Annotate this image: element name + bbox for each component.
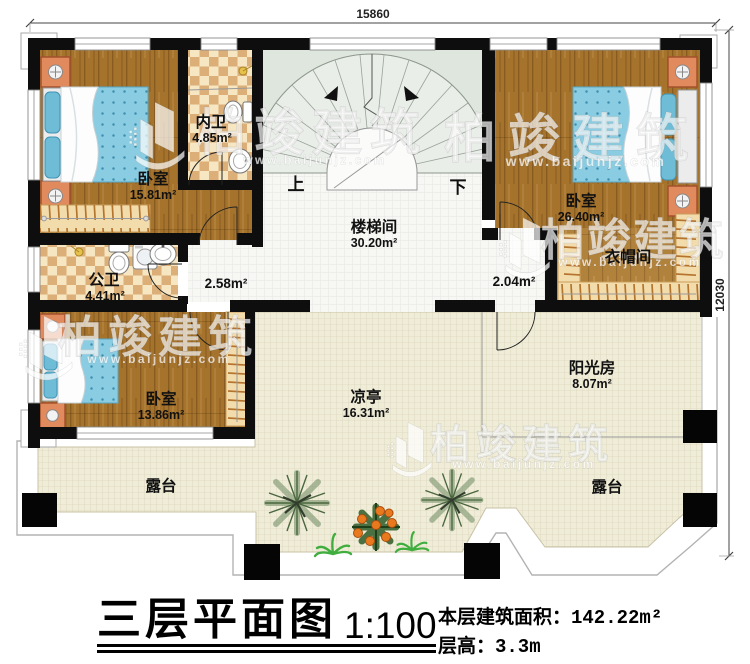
label-pavilion: 凉亭 <box>350 387 381 406</box>
label-stairwell-area: 30.20m² <box>351 236 398 250</box>
floor-plan-page: 柏竣建筑 www.baijunjz.com 柏竣建筑 www.baijunjz.… <box>0 0 750 664</box>
drawing-title: 三层平面图 <box>97 598 337 642</box>
label-bedroom-bl-area: 13.86m² <box>138 408 185 422</box>
label-hall-right-area: 2.04m² <box>493 274 536 289</box>
label-terrace-right: 露台 <box>591 477 622 496</box>
dimension-top: 15860 <box>26 7 720 32</box>
drawing-info: 本层建筑面积：142.22m² 层高：3.3m <box>438 604 662 663</box>
label-bedroom-tr-area: 26.40m² <box>558 210 605 224</box>
label-public-bath: 公卫 <box>88 271 120 289</box>
label-inner-bath-area: 4.85m² <box>192 131 232 145</box>
watermark-url: www.baijunjz.com <box>242 153 387 167</box>
title-block: 三层平面图 1:100 本层建筑面积：142.22m² 层高：3.3m <box>0 596 750 664</box>
label-cloakroom: 衣帽间 <box>605 247 652 266</box>
label-pavilion-area: 16.31m² <box>343 406 390 420</box>
label-hall-left-area: 2.58m² <box>205 276 248 291</box>
label-stairwell: 楼梯间 <box>351 217 398 236</box>
label-bedroom-tl: 卧室 <box>137 169 168 188</box>
label-bedroom-bl: 卧室 <box>145 389 176 408</box>
pine-plant-icon <box>422 470 483 531</box>
watermark-url: www.baijunjz.com <box>505 153 667 169</box>
watermark-url: www.baijunjz.com <box>86 352 231 366</box>
watermark-url: www.baijunjz.com <box>451 457 596 471</box>
label-sunroom: 阳光房 <box>569 358 616 377</box>
watermark-group-a: 柏竣建筑 www.baijunjz.com <box>129 102 428 169</box>
label-sunroom-area: 8.07m² <box>572 377 612 391</box>
toilet-icon <box>109 244 129 274</box>
label-stair-down: 下 <box>450 178 467 197</box>
dimension-right: 12030 <box>713 26 734 560</box>
dimension-top-value: 15860 <box>356 7 390 21</box>
pine-plant-icon <box>265 471 329 535</box>
floor-plan-drawing: 柏竣建筑 www.baijunjz.com 柏竣建筑 www.baijunjz.… <box>0 0 750 600</box>
title-underline <box>97 650 436 653</box>
floor-area-text: 本层建筑面积：142.22m² <box>438 604 662 633</box>
floor-height-text: 层高：3.3m <box>438 633 662 662</box>
wardrobe-top-left <box>40 205 150 232</box>
drawing-scale: 1:100 <box>344 605 437 647</box>
label-public-bath-area: 4.41m² <box>85 289 125 303</box>
label-inner-bath: 内卫 <box>195 112 227 131</box>
dimension-right-value: 12030 <box>713 278 727 312</box>
label-stair-up: 上 <box>288 175 305 194</box>
label-bedroom-tl-area: 15.81m² <box>130 188 177 202</box>
title-underline <box>97 644 436 647</box>
label-terrace-left: 露台 <box>145 476 176 495</box>
label-bedroom-tr: 卧室 <box>565 191 596 210</box>
watermark-group-b: 柏竣建筑 www.baijunjz.com <box>444 111 700 169</box>
sink-icon <box>150 243 176 265</box>
